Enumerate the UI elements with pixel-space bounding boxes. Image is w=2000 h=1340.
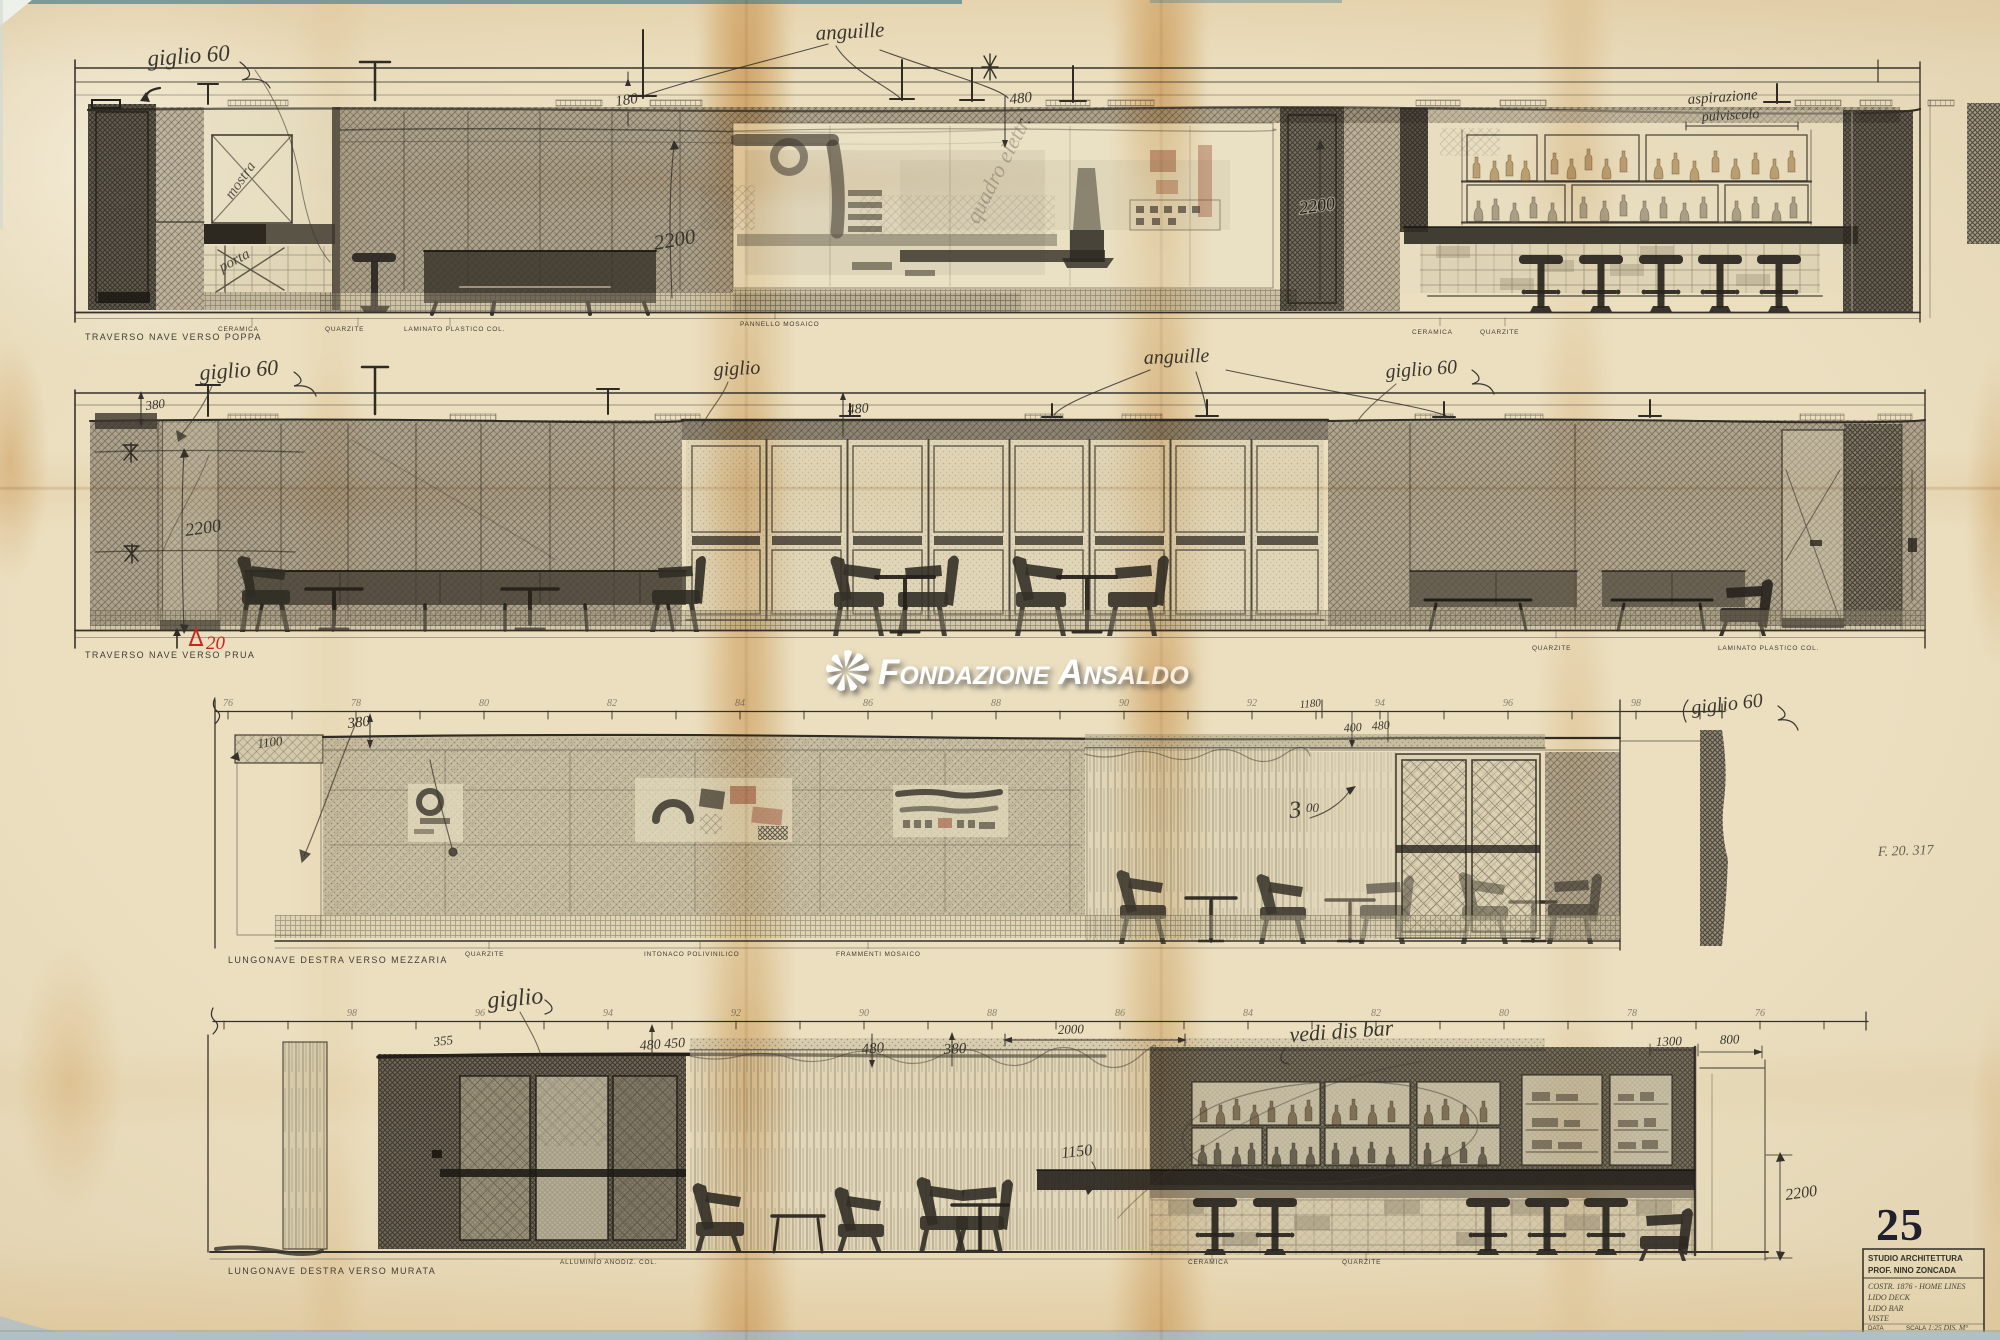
svg-text:25: 25 — [1876, 1199, 1924, 1250]
svg-text:PROF. NINO ZONCADA: PROF. NINO ZONCADA — [1868, 1266, 1956, 1275]
svg-text:380: 380 — [346, 714, 372, 732]
svg-text:86: 86 — [1115, 1008, 1125, 1019]
svg-text:380: 380 — [942, 1041, 967, 1058]
svg-text:STUDIO ARCHITETTURA: STUDIO ARCHITETTURA — [1868, 1254, 1963, 1263]
svg-text:84: 84 — [735, 698, 745, 709]
svg-text:92: 92 — [1247, 698, 1257, 709]
svg-text:90: 90 — [1119, 698, 1129, 709]
svg-text:94: 94 — [1375, 698, 1385, 709]
svg-text:LIDO BAR: LIDO BAR — [1867, 1304, 1903, 1313]
svg-text:2000: 2000 — [1058, 1021, 1085, 1037]
svg-text:anguille: anguille — [815, 17, 885, 45]
svg-text:TRAVERSO NAVE VERSO POPPA: TRAVERSO NAVE VERSO POPPA — [85, 332, 262, 342]
svg-text:CERAMICA: CERAMICA — [1412, 329, 1453, 336]
svg-text:QUARZITE: QUARZITE — [1342, 1259, 1381, 1266]
svg-text:TRAVERSO NAVE VERSO PRUA: TRAVERSO NAVE VERSO PRUA — [85, 650, 255, 660]
svg-text:aspirazione: aspirazione — [1687, 87, 1758, 108]
svg-text:anguille: anguille — [1143, 345, 1209, 369]
svg-text:giglio: giglio — [713, 357, 761, 381]
svg-text:400: 400 — [1343, 720, 1362, 735]
svg-text:96: 96 — [1503, 698, 1513, 709]
svg-text:00: 00 — [1306, 800, 1320, 815]
svg-text:82: 82 — [607, 698, 617, 709]
svg-text:COSTR. 1876 - HOME LINES: COSTR. 1876 - HOME LINES — [1868, 1282, 1966, 1291]
svg-text:94: 94 — [603, 1008, 613, 1019]
svg-text:78: 78 — [1627, 1008, 1637, 1019]
svg-text:88: 88 — [987, 1008, 997, 1019]
svg-text:3: 3 — [1287, 797, 1303, 824]
svg-text:480: 480 — [847, 401, 869, 418]
svg-text:QUARZITE: QUARZITE — [465, 951, 504, 958]
svg-text:1100: 1100 — [257, 733, 284, 751]
svg-text:90: 90 — [859, 1008, 869, 1019]
svg-text:ALLUMINIO ANODIZ. COL.: ALLUMINIO ANODIZ. COL. — [560, 1259, 657, 1266]
svg-text:800: 800 — [1720, 1031, 1741, 1047]
svg-text:LIDO DECK: LIDO DECK — [1867, 1293, 1911, 1302]
svg-text:1300: 1300 — [1656, 1033, 1683, 1049]
svg-text:PANNELLO MOSAICO: PANNELLO MOSAICO — [740, 321, 820, 328]
svg-text:giglio 60: giglio 60 — [199, 355, 279, 385]
svg-text:355: 355 — [432, 1032, 454, 1049]
svg-text:78: 78 — [351, 698, 361, 709]
svg-text:92: 92 — [731, 1008, 741, 1019]
svg-text:76: 76 — [1755, 1008, 1765, 1019]
svg-text:F. 20. 317: F. 20. 317 — [1877, 843, 1935, 860]
svg-text:QUARZITE: QUARZITE — [325, 326, 364, 333]
svg-text:INTONACO POLIVINILICO: INTONACO POLIVINILICO — [644, 951, 739, 958]
svg-text:giglio 60: giglio 60 — [1690, 690, 1764, 719]
svg-text:pulviscolo: pulviscolo — [1700, 107, 1759, 125]
svg-text:80: 80 — [1499, 1008, 1509, 1019]
svg-text:LUNGONAVE DESTRA VERSO MEZZARI: LUNGONAVE DESTRA VERSO MEZZARIA — [228, 955, 448, 965]
svg-text:96: 96 — [475, 1008, 485, 1019]
svg-text:480: 480 — [1009, 90, 1034, 108]
svg-text:giglio 60: giglio 60 — [147, 40, 231, 71]
svg-text:76: 76 — [223, 698, 233, 709]
svg-text:QUARZITE: QUARZITE — [1480, 329, 1519, 336]
svg-text:VISTE: VISTE — [1868, 1314, 1889, 1323]
svg-text:84: 84 — [1243, 1008, 1253, 1019]
svg-text:2200: 2200 — [1784, 1183, 1818, 1204]
svg-text:giglio: giglio — [486, 983, 544, 1014]
svg-text:80: 80 — [479, 698, 489, 709]
svg-text:CERAMICA: CERAMICA — [1188, 1259, 1229, 1266]
svg-text:88: 88 — [991, 698, 1001, 709]
svg-text:98: 98 — [1631, 698, 1641, 709]
svg-text:480: 480 — [1371, 718, 1390, 733]
svg-text:480 450: 480 450 — [639, 1036, 685, 1054]
svg-text:Fondazione Ansaldo: Fondazione Ansaldo — [878, 653, 1189, 692]
svg-text:LUNGONAVE DESTRA VERSO MURATA: LUNGONAVE DESTRA VERSO MURATA — [228, 1266, 436, 1276]
svg-text:giglio 60: giglio 60 — [1385, 356, 1458, 383]
svg-text:380: 380 — [144, 396, 167, 413]
svg-text:CERAMICA: CERAMICA — [218, 326, 259, 333]
svg-text:LAMINATO PLASTICO COL.: LAMINATO PLASTICO COL. — [1718, 645, 1819, 652]
svg-text:LAMINATO PLASTICO COL.: LAMINATO PLASTICO COL. — [404, 326, 505, 333]
svg-text:FRAMMENTI MOSAICO: FRAMMENTI MOSAICO — [836, 951, 921, 958]
svg-text:QUARZITE: QUARZITE — [1532, 645, 1571, 652]
svg-text:98: 98 — [347, 1008, 357, 1019]
svg-text:86: 86 — [863, 698, 873, 709]
svg-text:180: 180 — [614, 91, 639, 110]
svg-text:1180: 1180 — [1299, 697, 1322, 711]
svg-text:1150: 1150 — [1061, 1142, 1093, 1162]
svg-text:480: 480 — [861, 1040, 885, 1058]
